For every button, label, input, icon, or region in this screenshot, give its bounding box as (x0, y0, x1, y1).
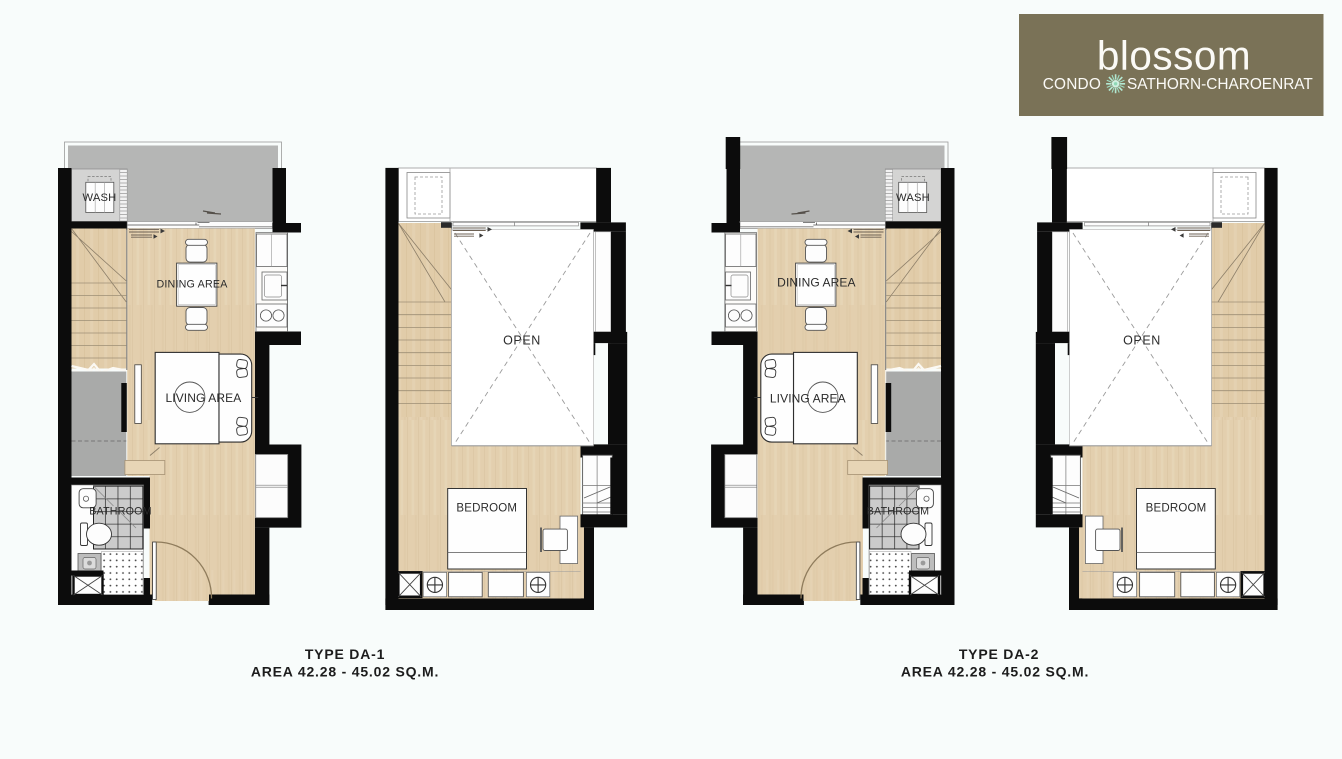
svg-text:BEDROOM: BEDROOM (456, 503, 517, 515)
svg-text:WASH: WASH (83, 192, 117, 204)
svg-text:LIVING AREA: LIVING AREA (770, 392, 846, 406)
svg-text:TYPE DA-1: TYPE DA-1 (305, 646, 385, 662)
svg-text:BATHROOM: BATHROOM (89, 506, 152, 518)
svg-text:WASH: WASH (896, 192, 930, 204)
svg-text:AREA 42.28 - 45.02 SQ.M.: AREA 42.28 - 45.02 SQ.M. (901, 664, 1089, 680)
svg-text:OPEN: OPEN (1123, 334, 1161, 348)
svg-text:LIVING AREA: LIVING AREA (166, 391, 242, 405)
svg-text:AREA 42.28 - 45.02 SQ.M.: AREA 42.28 - 45.02 SQ.M. (251, 664, 439, 680)
svg-text:CONDO: CONDO (1043, 76, 1101, 93)
svg-text:DINING AREA: DINING AREA (777, 276, 855, 290)
svg-text:DINING AREA: DINING AREA (156, 278, 228, 290)
svg-text:OPEN: OPEN (503, 334, 541, 348)
svg-text:BEDROOM: BEDROOM (1146, 503, 1207, 515)
svg-text:blossom: blossom (1097, 33, 1251, 79)
svg-text:BATHROOM: BATHROOM (867, 506, 930, 518)
svg-text:TYPE DA-2: TYPE DA-2 (959, 646, 1039, 662)
svg-text:SATHORN-CHAROENRAT: SATHORN-CHAROENRAT (1127, 76, 1313, 93)
